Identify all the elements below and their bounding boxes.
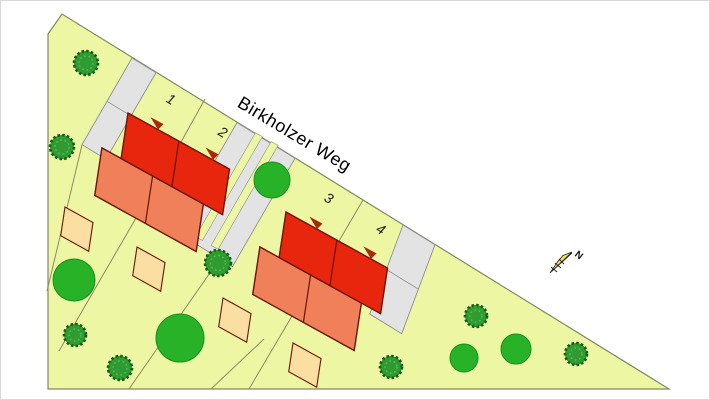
tree-icon [53,259,95,301]
north-arrow-icon: N [550,249,585,273]
tree-icon [465,305,487,327]
tree-icon [74,51,98,75]
north-label: N [572,249,584,262]
tree-icon [108,356,132,380]
tree-icon [205,250,231,276]
tree-icon [501,334,531,364]
tree-icon [254,162,290,198]
tree-icon [64,324,86,346]
tree-icon [156,314,204,362]
tree-icon [380,356,402,378]
tree-icon [450,344,478,372]
tree-icon [565,343,587,365]
site-plan-screenshot: Birkholzer Weg 1 2 3 4 N [0,0,710,400]
site-plan-map: Birkholzer Weg 1 2 3 4 N [1,1,710,400]
tree-icon [50,135,74,159]
